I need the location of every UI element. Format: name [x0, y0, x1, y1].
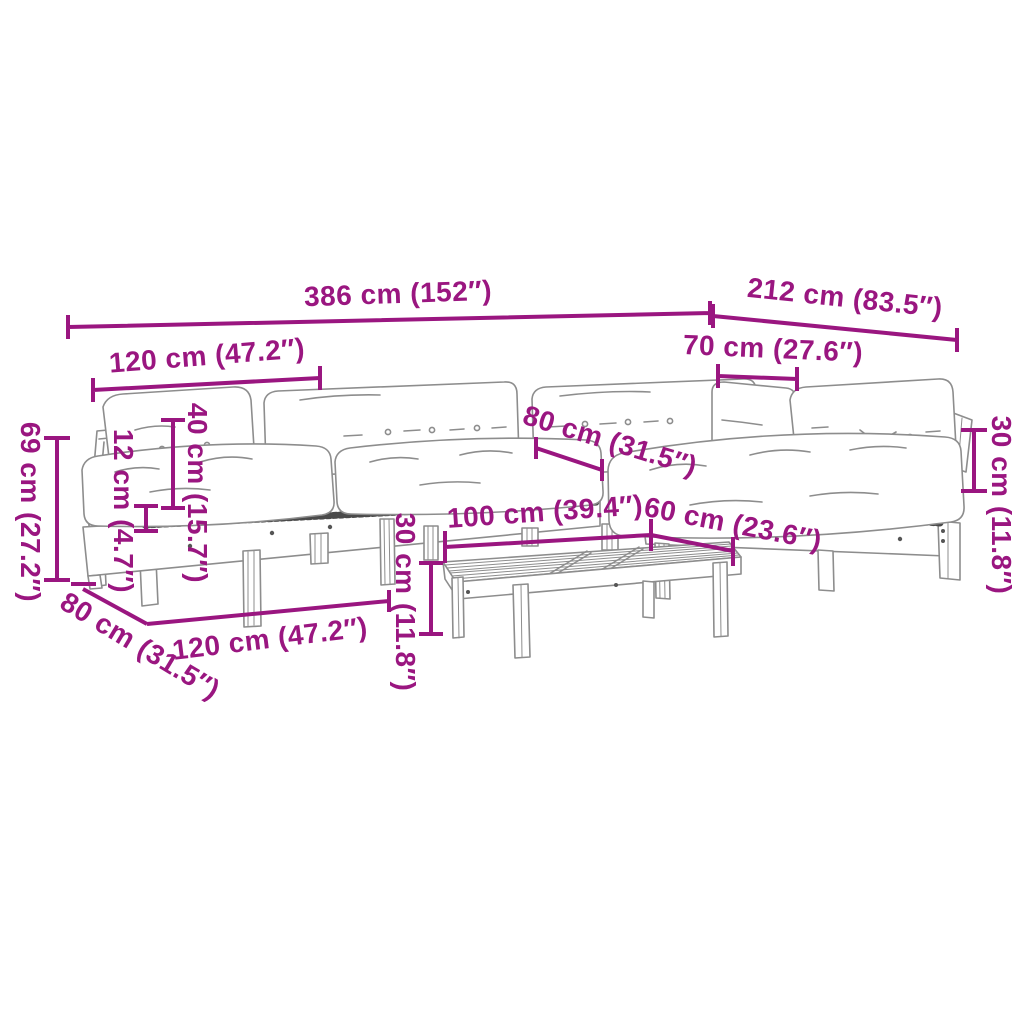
diagram-stage: 386 cm (152″) 212 cm (83.5″) 120 cm (47.…	[0, 0, 1024, 1024]
dimension-label-cushion-thickness: 12 cm (4.7″)	[107, 429, 139, 593]
dimension-label-table-height: 30 cm (11.8″)	[389, 513, 421, 692]
dimension-label-backrest-height: 40 cm (15.7″)	[181, 403, 213, 583]
coffee-table	[443, 542, 741, 658]
dim-line-table-height	[419, 563, 443, 634]
dim-line-overall-height	[44, 438, 70, 580]
dimension-label-overall-height: 69 cm (27.2″)	[14, 422, 46, 602]
dimension-label-right-backrest-height: 30 cm (11.8″)	[985, 416, 1017, 595]
dimension-label-overall-width: 386 cm (152″)	[303, 275, 492, 314]
